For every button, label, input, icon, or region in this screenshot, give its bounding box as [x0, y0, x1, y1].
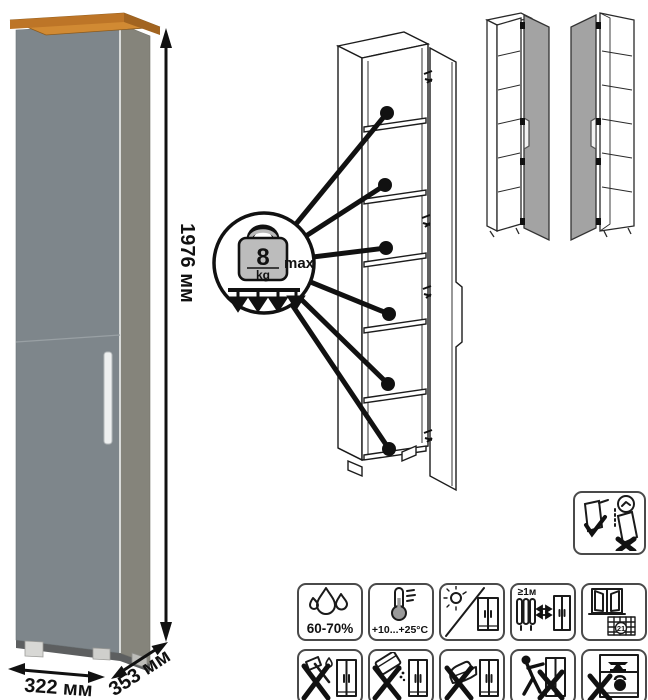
no-overloading-icon	[581, 649, 647, 700]
wall-anchoring-glyph	[577, 495, 642, 551]
x-mark	[540, 672, 562, 698]
ventilation-icon: 21	[581, 583, 647, 641]
door-variant-left	[487, 13, 549, 240]
width-label: 322 мм	[23, 675, 93, 700]
foot-right	[93, 648, 110, 660]
x-mark	[304, 666, 328, 698]
no-aggressive-cleaners-icon	[368, 649, 434, 700]
humidity-label: 60-70%	[307, 621, 354, 636]
no-direct-sunlight-icon	[439, 583, 505, 641]
humidity-icon: 60-70%	[297, 583, 363, 641]
heat-distance-icon: ≥1м	[510, 583, 576, 641]
cabinet-line-drawing	[338, 32, 462, 490]
arrowhead-down	[160, 622, 172, 642]
days-label: 21	[617, 624, 625, 633]
door-variant-right	[571, 13, 634, 240]
product-sheet: 1976 мм 322 мм 353 мм	[0, 0, 648, 700]
door-handle	[104, 352, 112, 444]
no-sharp-impacts-icon	[297, 649, 363, 700]
temperature-icon: +10...+25°C	[368, 583, 434, 641]
cabinet-side-panel	[120, 24, 150, 664]
height-label: 1976 мм	[176, 223, 198, 303]
x-mark	[447, 668, 471, 698]
anvil-glyph	[608, 662, 628, 672]
no-hot-objects-icon	[439, 649, 505, 700]
load-value: 8	[256, 244, 269, 271]
kettlebell-glyph	[614, 676, 626, 691]
wall-anchoring-icon	[573, 491, 646, 555]
variant-right-handle	[591, 118, 596, 149]
cabinet-render	[10, 13, 160, 672]
dimension-width: 322 мм	[8, 663, 105, 700]
load-unit: kg	[256, 268, 270, 282]
temperature-label: +10...+25°C	[372, 624, 429, 636]
no-dragging-icon	[510, 649, 576, 700]
dimension-height: 1976 мм	[160, 28, 198, 642]
open-door	[430, 48, 462, 490]
foot-left	[25, 641, 43, 657]
distance-label: ≥1м	[518, 587, 536, 598]
arrowhead-left	[8, 663, 25, 675]
load-qualifier: max	[284, 255, 315, 272]
arrowhead-up	[160, 28, 172, 48]
